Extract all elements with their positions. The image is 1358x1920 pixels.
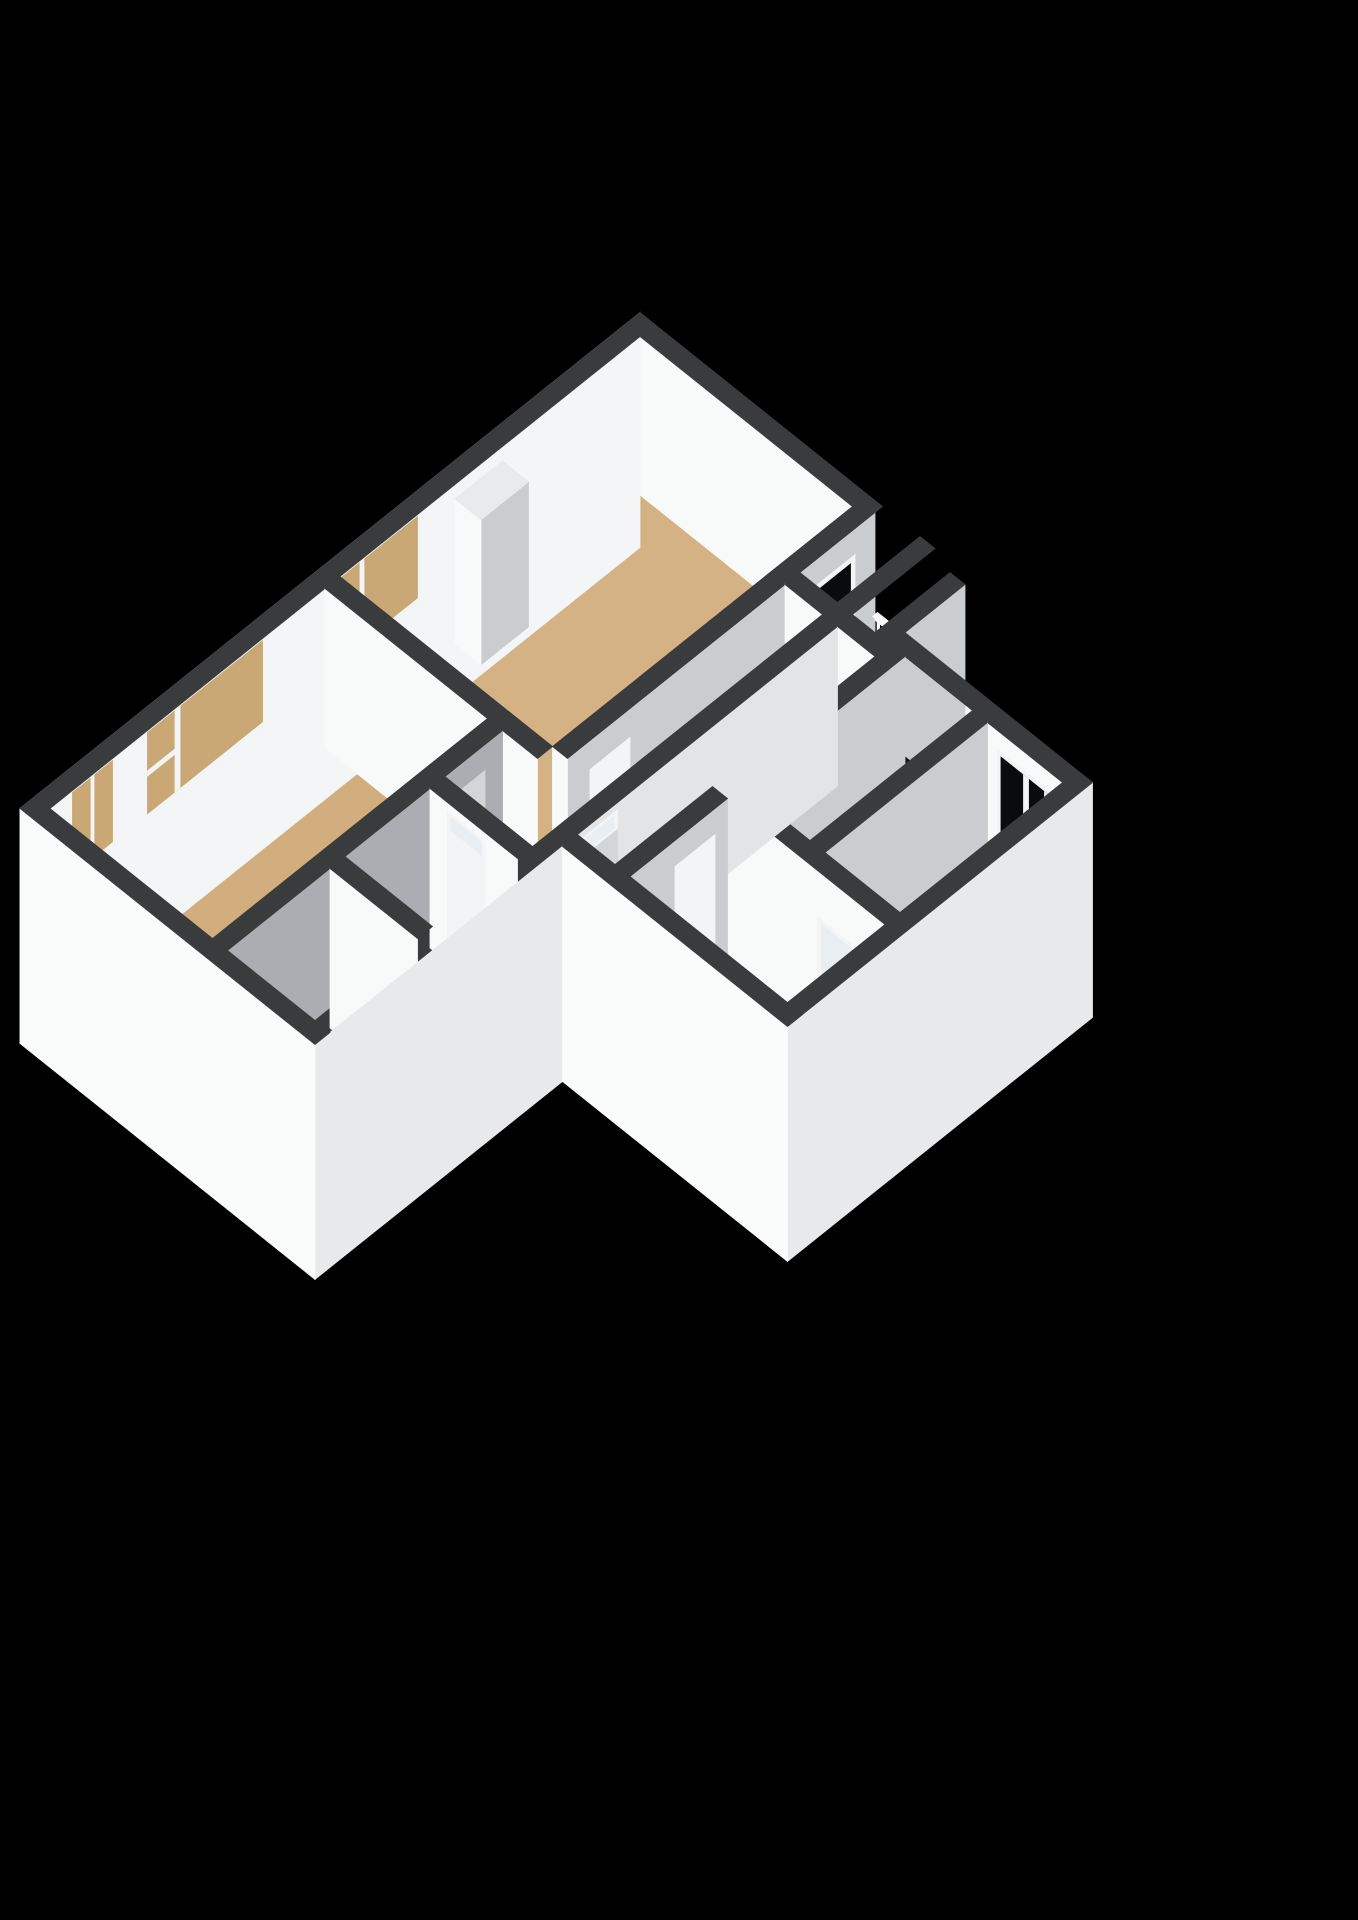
floorplan-3d-stage — [0, 0, 1358, 1920]
floorplan-3d-canvas — [0, 0, 1358, 1920]
bedroom1-window-mullion — [175, 707, 180, 792]
chimney-south-face — [455, 499, 481, 665]
